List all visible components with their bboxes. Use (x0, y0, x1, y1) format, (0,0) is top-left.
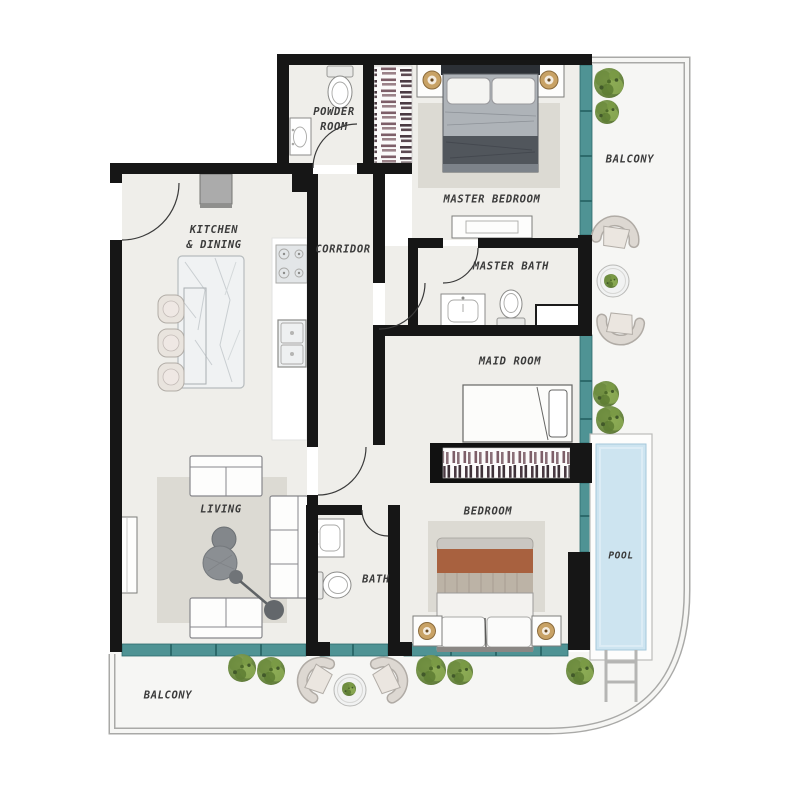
bath-sink-icon (314, 519, 344, 557)
plant-icon (593, 381, 619, 407)
plant-icon (447, 659, 473, 685)
sofa-long (270, 496, 308, 598)
floor-plan: POWDER ROOM MASTER BEDROOM BALCONY KITCH… (0, 0, 800, 800)
bedroom-wardrobe (430, 443, 592, 483)
plant-icon (416, 655, 446, 685)
kitchen-island (178, 256, 244, 388)
plant-icon (566, 657, 594, 685)
maid-room (463, 385, 572, 442)
master-bed (441, 62, 540, 172)
potted-plant-icon (604, 274, 618, 288)
maid-bed (463, 385, 572, 442)
plant-icon (228, 654, 256, 682)
sofa (190, 598, 262, 638)
sofa (190, 456, 262, 496)
kitchen-sink-icon (278, 320, 306, 367)
entry-closet (374, 66, 412, 163)
dresser (452, 216, 532, 238)
toilet-icon (314, 572, 351, 599)
bath-sink-icon (441, 294, 485, 328)
toilet-icon (327, 66, 353, 108)
utility-shaft (200, 174, 232, 208)
plant-icon (596, 406, 624, 434)
cooktop-icon (276, 245, 307, 283)
nightstand (532, 616, 561, 646)
island-stools (158, 295, 184, 391)
nightstand (413, 616, 442, 646)
powder-sink-icon (290, 118, 311, 155)
plant-icon (594, 68, 624, 98)
bath-window (536, 305, 580, 328)
plant-icon (595, 100, 619, 124)
potted-plant-icon (342, 682, 356, 696)
bedroom-bed (437, 538, 533, 652)
plant-icon (257, 657, 285, 685)
floor-plan-drawing (0, 0, 800, 800)
